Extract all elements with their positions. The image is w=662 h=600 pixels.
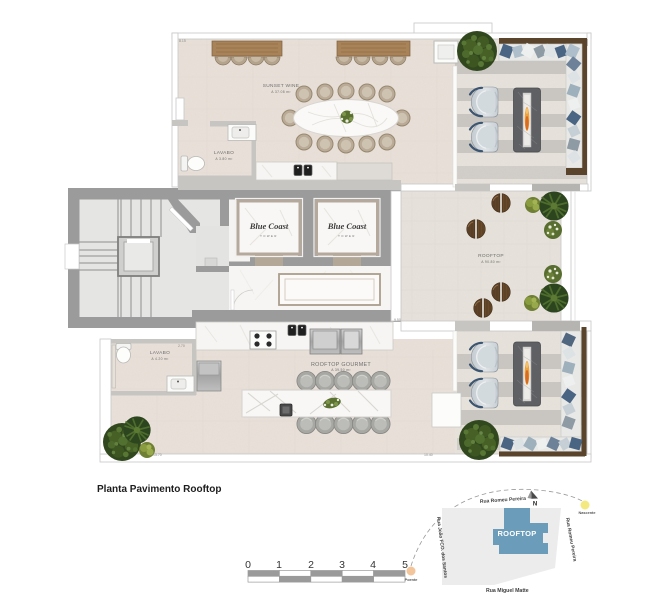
svg-text:ROOFTOP: ROOFTOP (478, 253, 504, 259)
svg-text:9.50: 9.50 (394, 318, 401, 322)
svg-text:LAVABO: LAVABO (214, 150, 234, 156)
svg-text:N: N (533, 502, 537, 508)
svg-text:1: 1 (276, 559, 282, 571)
svg-text:A 90.80 m²: A 90.80 m² (481, 260, 501, 264)
svg-text:Blue Coast: Blue Coast (249, 221, 289, 231)
svg-text:15.70: 15.70 (153, 453, 162, 457)
svg-text:Nascente: Nascente (579, 511, 596, 515)
svg-text:Rua Miguel Matte: Rua Miguel Matte (486, 588, 529, 594)
svg-text:A 37.08 m²: A 37.08 m² (271, 90, 291, 94)
svg-text:SUNSET WINE: SUNSET WINE (263, 83, 300, 89)
svg-text:Planta Pavimento Rooftop: Planta Pavimento Rooftop (97, 484, 221, 495)
svg-text:2: 2 (308, 559, 314, 571)
svg-text:10.40: 10.40 (424, 453, 433, 457)
svg-text:4: 4 (370, 559, 376, 571)
svg-text:8.15: 8.15 (179, 39, 186, 43)
svg-text:TOWER: TOWER (260, 234, 278, 238)
svg-text:0: 0 (245, 559, 251, 571)
svg-text:3: 3 (339, 559, 345, 571)
svg-text:A 4.20 m²: A 4.20 m² (151, 357, 169, 361)
svg-text:A 39.50 m²: A 39.50 m² (331, 368, 351, 372)
svg-text:TOWER: TOWER (338, 234, 356, 238)
svg-text:Poente: Poente (405, 578, 418, 582)
svg-text:A 3.80 m²: A 3.80 m² (215, 157, 233, 161)
svg-text:2.70: 2.70 (178, 344, 185, 348)
svg-text:LAVABO: LAVABO (150, 350, 170, 356)
svg-text:Blue Coast: Blue Coast (327, 221, 367, 231)
svg-text:ROOFTOP: ROOFTOP (497, 529, 536, 538)
